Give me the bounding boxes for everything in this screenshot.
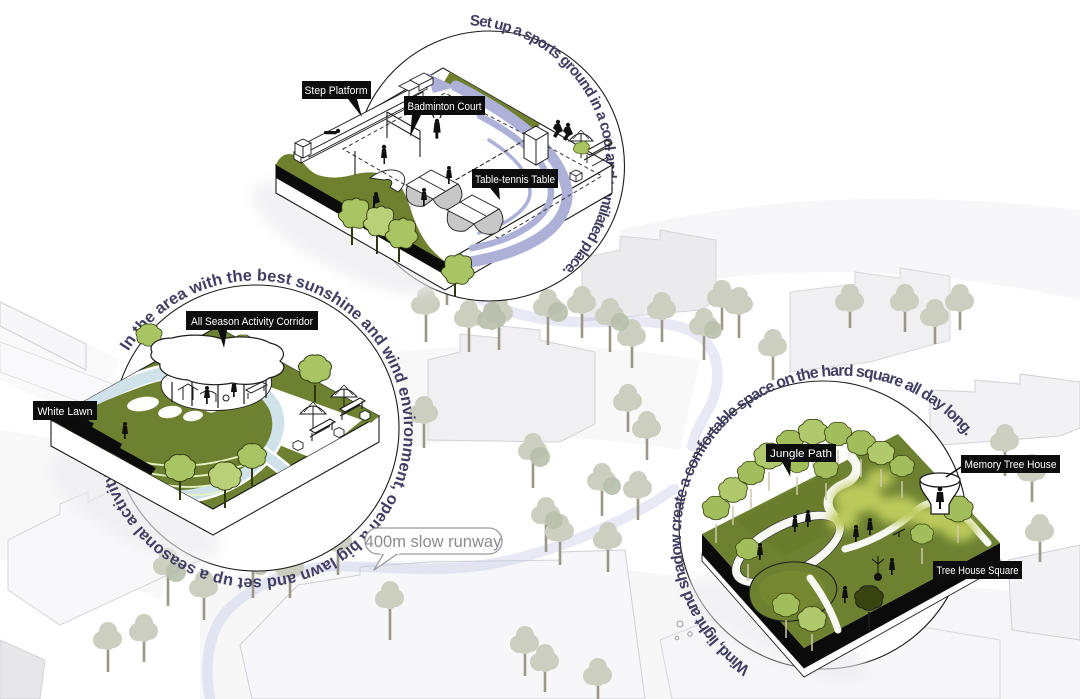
svg-text:Badminton Court: Badminton Court xyxy=(408,101,483,113)
svg-text:400m slow runway: 400m slow runway xyxy=(365,533,502,551)
svg-text:Step Platform: Step Platform xyxy=(305,85,368,97)
svg-text:Tree House Square: Tree House Square xyxy=(937,565,1019,577)
svg-text:White Lawn: White Lawn xyxy=(38,406,93,418)
svg-text:Memory Tree House: Memory Tree House xyxy=(965,459,1057,471)
svg-text:Table-tennis Table: Table-tennis Table xyxy=(475,174,555,186)
svg-text:Jungle Path: Jungle Path xyxy=(770,448,832,460)
svg-text:All Season Activity Corridor: All Season Activity Corridor xyxy=(191,316,313,328)
